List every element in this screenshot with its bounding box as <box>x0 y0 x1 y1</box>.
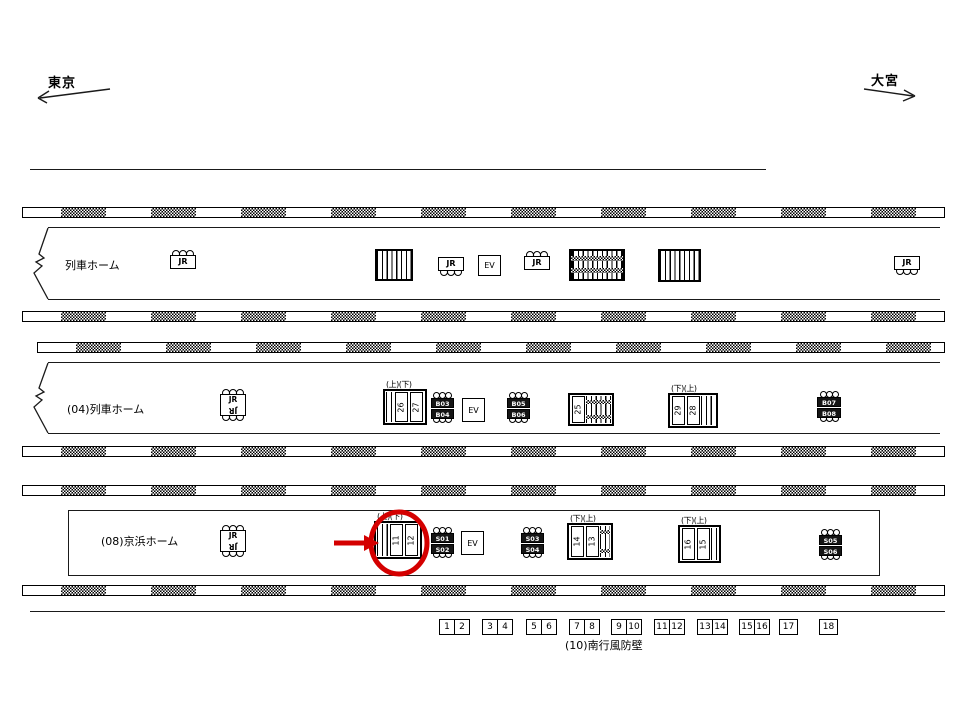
platform-location-sign: B07B08 <box>817 391 841 423</box>
tactile-strip-5 <box>22 485 945 496</box>
plain-segment <box>736 586 781 595</box>
hatched-segment <box>601 586 646 595</box>
plain-segment <box>916 447 944 456</box>
plain-segment <box>736 486 781 495</box>
plain-segment <box>916 586 944 595</box>
hatched-segment <box>781 586 826 595</box>
platform-location-sign: S05S06 <box>819 529 842 561</box>
plain-segment <box>376 486 421 495</box>
hatched-segment <box>781 208 826 217</box>
hatched-segment <box>511 208 556 217</box>
hatched-segment <box>331 586 376 595</box>
plain-segment <box>196 586 241 595</box>
hatched-segment <box>151 486 196 495</box>
plain-segment <box>646 208 691 217</box>
updown-header: (下)(上) <box>570 513 595 524</box>
plain-segment <box>736 312 781 321</box>
hatched-segment <box>691 208 736 217</box>
wall-panel-number: 1 <box>439 619 455 635</box>
platform-upper-label: 列車ホーム <box>65 257 120 273</box>
updown-header: (下)(上) <box>671 383 696 394</box>
plain-segment <box>661 343 706 352</box>
plain-segment <box>196 312 241 321</box>
hatched-segment <box>421 486 466 495</box>
jr-sign: JRJR <box>220 389 246 421</box>
hatched-segment <box>781 486 826 495</box>
stairs-structure: (下)(上)2928 <box>668 393 718 428</box>
plain-segment <box>466 312 511 321</box>
windbreak-wall-row: (10)南行風防壁 123456789101112131415161718 <box>0 0 960 720</box>
hatched-segment <box>871 586 916 595</box>
plain-segment <box>646 586 691 595</box>
elevator-sign: EV <box>461 531 484 555</box>
plain-segment <box>826 312 871 321</box>
hatched-segment <box>796 343 841 352</box>
hatched-segment <box>601 486 646 495</box>
platform-location-sign: S01S02 <box>431 527 454 559</box>
platform-break-symbol <box>33 227 50 300</box>
hatched-segment <box>526 343 571 352</box>
plain-segment <box>841 343 886 352</box>
plain-segment <box>286 447 331 456</box>
wall-panel-number: 10 <box>626 619 642 635</box>
plain-segment <box>23 208 61 217</box>
hatched-segment <box>421 312 466 321</box>
wall-panel-number: 3 <box>482 619 498 635</box>
hatched-segment <box>421 586 466 595</box>
stair-number-box: 13 <box>586 526 599 557</box>
plain-segment <box>23 486 61 495</box>
hatched-segment <box>691 586 736 595</box>
wall-panel-number: 9 <box>611 619 627 635</box>
plain-segment <box>826 486 871 495</box>
stair-number-box: 12 <box>405 524 418 556</box>
plain-segment <box>736 208 781 217</box>
plain-segment <box>286 312 331 321</box>
hatched-segment <box>886 343 931 352</box>
hatched-segment <box>61 447 106 456</box>
hatched-segment <box>781 447 826 456</box>
stair-number-box: 28 <box>687 396 700 425</box>
hatched-segment <box>241 447 286 456</box>
hatched-segment <box>871 312 916 321</box>
plain-segment <box>466 486 511 495</box>
plain-segment <box>23 586 61 595</box>
hatched-segment <box>691 447 736 456</box>
plain-segment <box>376 208 421 217</box>
hatched-segment <box>601 447 646 456</box>
plain-segment <box>826 447 871 456</box>
plain-segment <box>826 208 871 217</box>
tactile-strip-6 <box>22 585 945 596</box>
wall-panel-number: 6 <box>541 619 557 635</box>
plain-segment <box>556 447 601 456</box>
hatched-segment <box>871 208 916 217</box>
tactile-strip-4 <box>22 446 945 457</box>
hatched-segment <box>151 208 196 217</box>
hatched-segment <box>601 208 646 217</box>
stair-number-box: 26 <box>395 392 408 422</box>
hatched-segment <box>241 586 286 595</box>
plain-segment <box>466 447 511 456</box>
hatched-segment <box>511 586 556 595</box>
platform-break-symbol <box>33 362 50 434</box>
plain-segment <box>646 312 691 321</box>
plain-segment <box>556 586 601 595</box>
plain-segment <box>556 208 601 217</box>
plain-segment <box>751 343 796 352</box>
hatched-segment <box>871 447 916 456</box>
plain-segment <box>38 343 76 352</box>
hatched-segment <box>691 312 736 321</box>
plain-segment <box>916 312 944 321</box>
platform-04: (04)列車ホーム <box>48 362 940 434</box>
platform-location-sign: B03B04 <box>431 392 454 424</box>
plain-segment <box>106 208 151 217</box>
stair-number-box: 11 <box>390 524 403 556</box>
stairs-icon <box>658 249 701 282</box>
hatched-segment <box>61 208 106 217</box>
plain-segment <box>826 586 871 595</box>
hatched-segment <box>241 486 286 495</box>
plain-segment <box>916 208 944 217</box>
wall-panel-number: 14 <box>712 619 728 635</box>
hatched-segment <box>706 343 751 352</box>
hatched-segment <box>616 343 661 352</box>
plain-segment <box>736 447 781 456</box>
elevator-sign: EV <box>478 255 501 276</box>
hatched-segment <box>601 312 646 321</box>
escalator-structure: 25 <box>568 393 614 426</box>
plain-segment <box>23 312 61 321</box>
hatched-segment <box>436 343 481 352</box>
plain-segment <box>301 343 346 352</box>
stairs-structure: (上)(下)2627 <box>383 389 427 425</box>
plain-segment <box>571 343 616 352</box>
updown-header: (上)(下) <box>386 379 411 390</box>
stair-number-box: 27 <box>410 392 423 422</box>
hatched-segment <box>151 586 196 595</box>
wall-panel-number: 7 <box>569 619 585 635</box>
plain-segment <box>106 447 151 456</box>
escalator-structure: (下)(上)1413 <box>567 523 613 560</box>
stair-number-box: 29 <box>672 396 685 425</box>
hatched-segment <box>151 447 196 456</box>
plain-segment <box>466 586 511 595</box>
elevator-sign: EV <box>462 398 485 422</box>
wall-panel-number: 5 <box>526 619 542 635</box>
wall-panel-number: 17 <box>779 619 798 635</box>
hatched-segment <box>331 447 376 456</box>
wall-panel-number: 18 <box>819 619 838 635</box>
plain-segment <box>106 312 151 321</box>
wall-panel-number: 12 <box>669 619 685 635</box>
platform-location-sign: S03S04 <box>521 527 544 559</box>
plain-segment <box>286 586 331 595</box>
tactile-strip-3 <box>37 342 945 353</box>
hatched-segment <box>61 486 106 495</box>
hatched-segment <box>871 486 916 495</box>
plain-segment <box>211 343 256 352</box>
hatched-segment <box>511 486 556 495</box>
hatched-segment <box>61 586 106 595</box>
plain-segment <box>286 486 331 495</box>
hatched-segment <box>241 208 286 217</box>
stair-number-box: 15 <box>697 528 710 560</box>
escalator-icon <box>569 249 625 281</box>
platform-08-label: (08)京浜ホーム <box>101 533 178 549</box>
wall-panel-number: 16 <box>754 619 770 635</box>
plain-segment <box>121 343 166 352</box>
hatched-segment <box>151 312 196 321</box>
hatched-segment <box>61 312 106 321</box>
plain-segment <box>196 447 241 456</box>
plain-segment <box>556 312 601 321</box>
stair-number-box: 16 <box>682 528 695 560</box>
plain-segment <box>196 208 241 217</box>
stair-number-box: 14 <box>571 526 584 557</box>
hatched-segment <box>781 312 826 321</box>
plain-segment <box>646 447 691 456</box>
plain-segment <box>286 208 331 217</box>
stairs-structure: (上)(下)1112 <box>374 521 422 559</box>
station-platform-diagram: 東京 大宮 列車ホーム (04)列車ホーム (08)京浜ホーム JRJREVJR… <box>0 0 960 720</box>
stairs-structure: (下)(上)1615 <box>678 525 721 563</box>
hatched-segment <box>421 208 466 217</box>
plain-segment <box>106 486 151 495</box>
jr-sign: JR <box>170 250 196 269</box>
plain-segment <box>646 486 691 495</box>
updown-header: (下)(上) <box>681 515 706 526</box>
hatched-segment <box>346 343 391 352</box>
plain-segment <box>376 586 421 595</box>
jr-sign: JR <box>524 251 550 270</box>
hatched-segment <box>76 343 121 352</box>
plain-segment <box>376 447 421 456</box>
updown-header: (上)(下) <box>377 511 402 522</box>
plain-segment <box>916 486 944 495</box>
tactile-strip-1 <box>22 207 945 218</box>
wall-panel-number: 4 <box>497 619 513 635</box>
plain-segment <box>931 343 944 352</box>
jr-sign: JR <box>894 256 920 275</box>
plain-segment <box>106 586 151 595</box>
stair-number-box: 25 <box>572 396 585 423</box>
platform-location-sign: B05B06 <box>507 392 530 424</box>
hatched-segment <box>511 312 556 321</box>
hatched-segment <box>331 312 376 321</box>
wall-panel-number: 15 <box>739 619 755 635</box>
hatched-segment <box>256 343 301 352</box>
wall-panel-number: 11 <box>654 619 670 635</box>
windbreak-wall-label: (10)南行風防壁 <box>565 637 643 653</box>
hatched-segment <box>511 447 556 456</box>
hatched-segment <box>331 208 376 217</box>
tactile-strip-2 <box>22 311 945 322</box>
hatched-segment <box>691 486 736 495</box>
plain-segment <box>481 343 526 352</box>
plain-segment <box>466 208 511 217</box>
platform-04-label: (04)列車ホーム <box>67 401 144 417</box>
plain-segment <box>196 486 241 495</box>
jr-sign: JR <box>438 257 464 276</box>
plain-segment <box>556 486 601 495</box>
stairs-icon <box>375 249 413 281</box>
wall-panel-number: 2 <box>454 619 470 635</box>
hatched-segment <box>331 486 376 495</box>
jr-sign: JRJR <box>220 525 246 557</box>
wall-panel-number: 8 <box>584 619 600 635</box>
hatched-segment <box>166 343 211 352</box>
hatched-segment <box>421 447 466 456</box>
wall-panel-number: 13 <box>697 619 713 635</box>
plain-segment <box>391 343 436 352</box>
hatched-segment <box>241 312 286 321</box>
plain-segment <box>376 312 421 321</box>
plain-segment <box>23 447 61 456</box>
